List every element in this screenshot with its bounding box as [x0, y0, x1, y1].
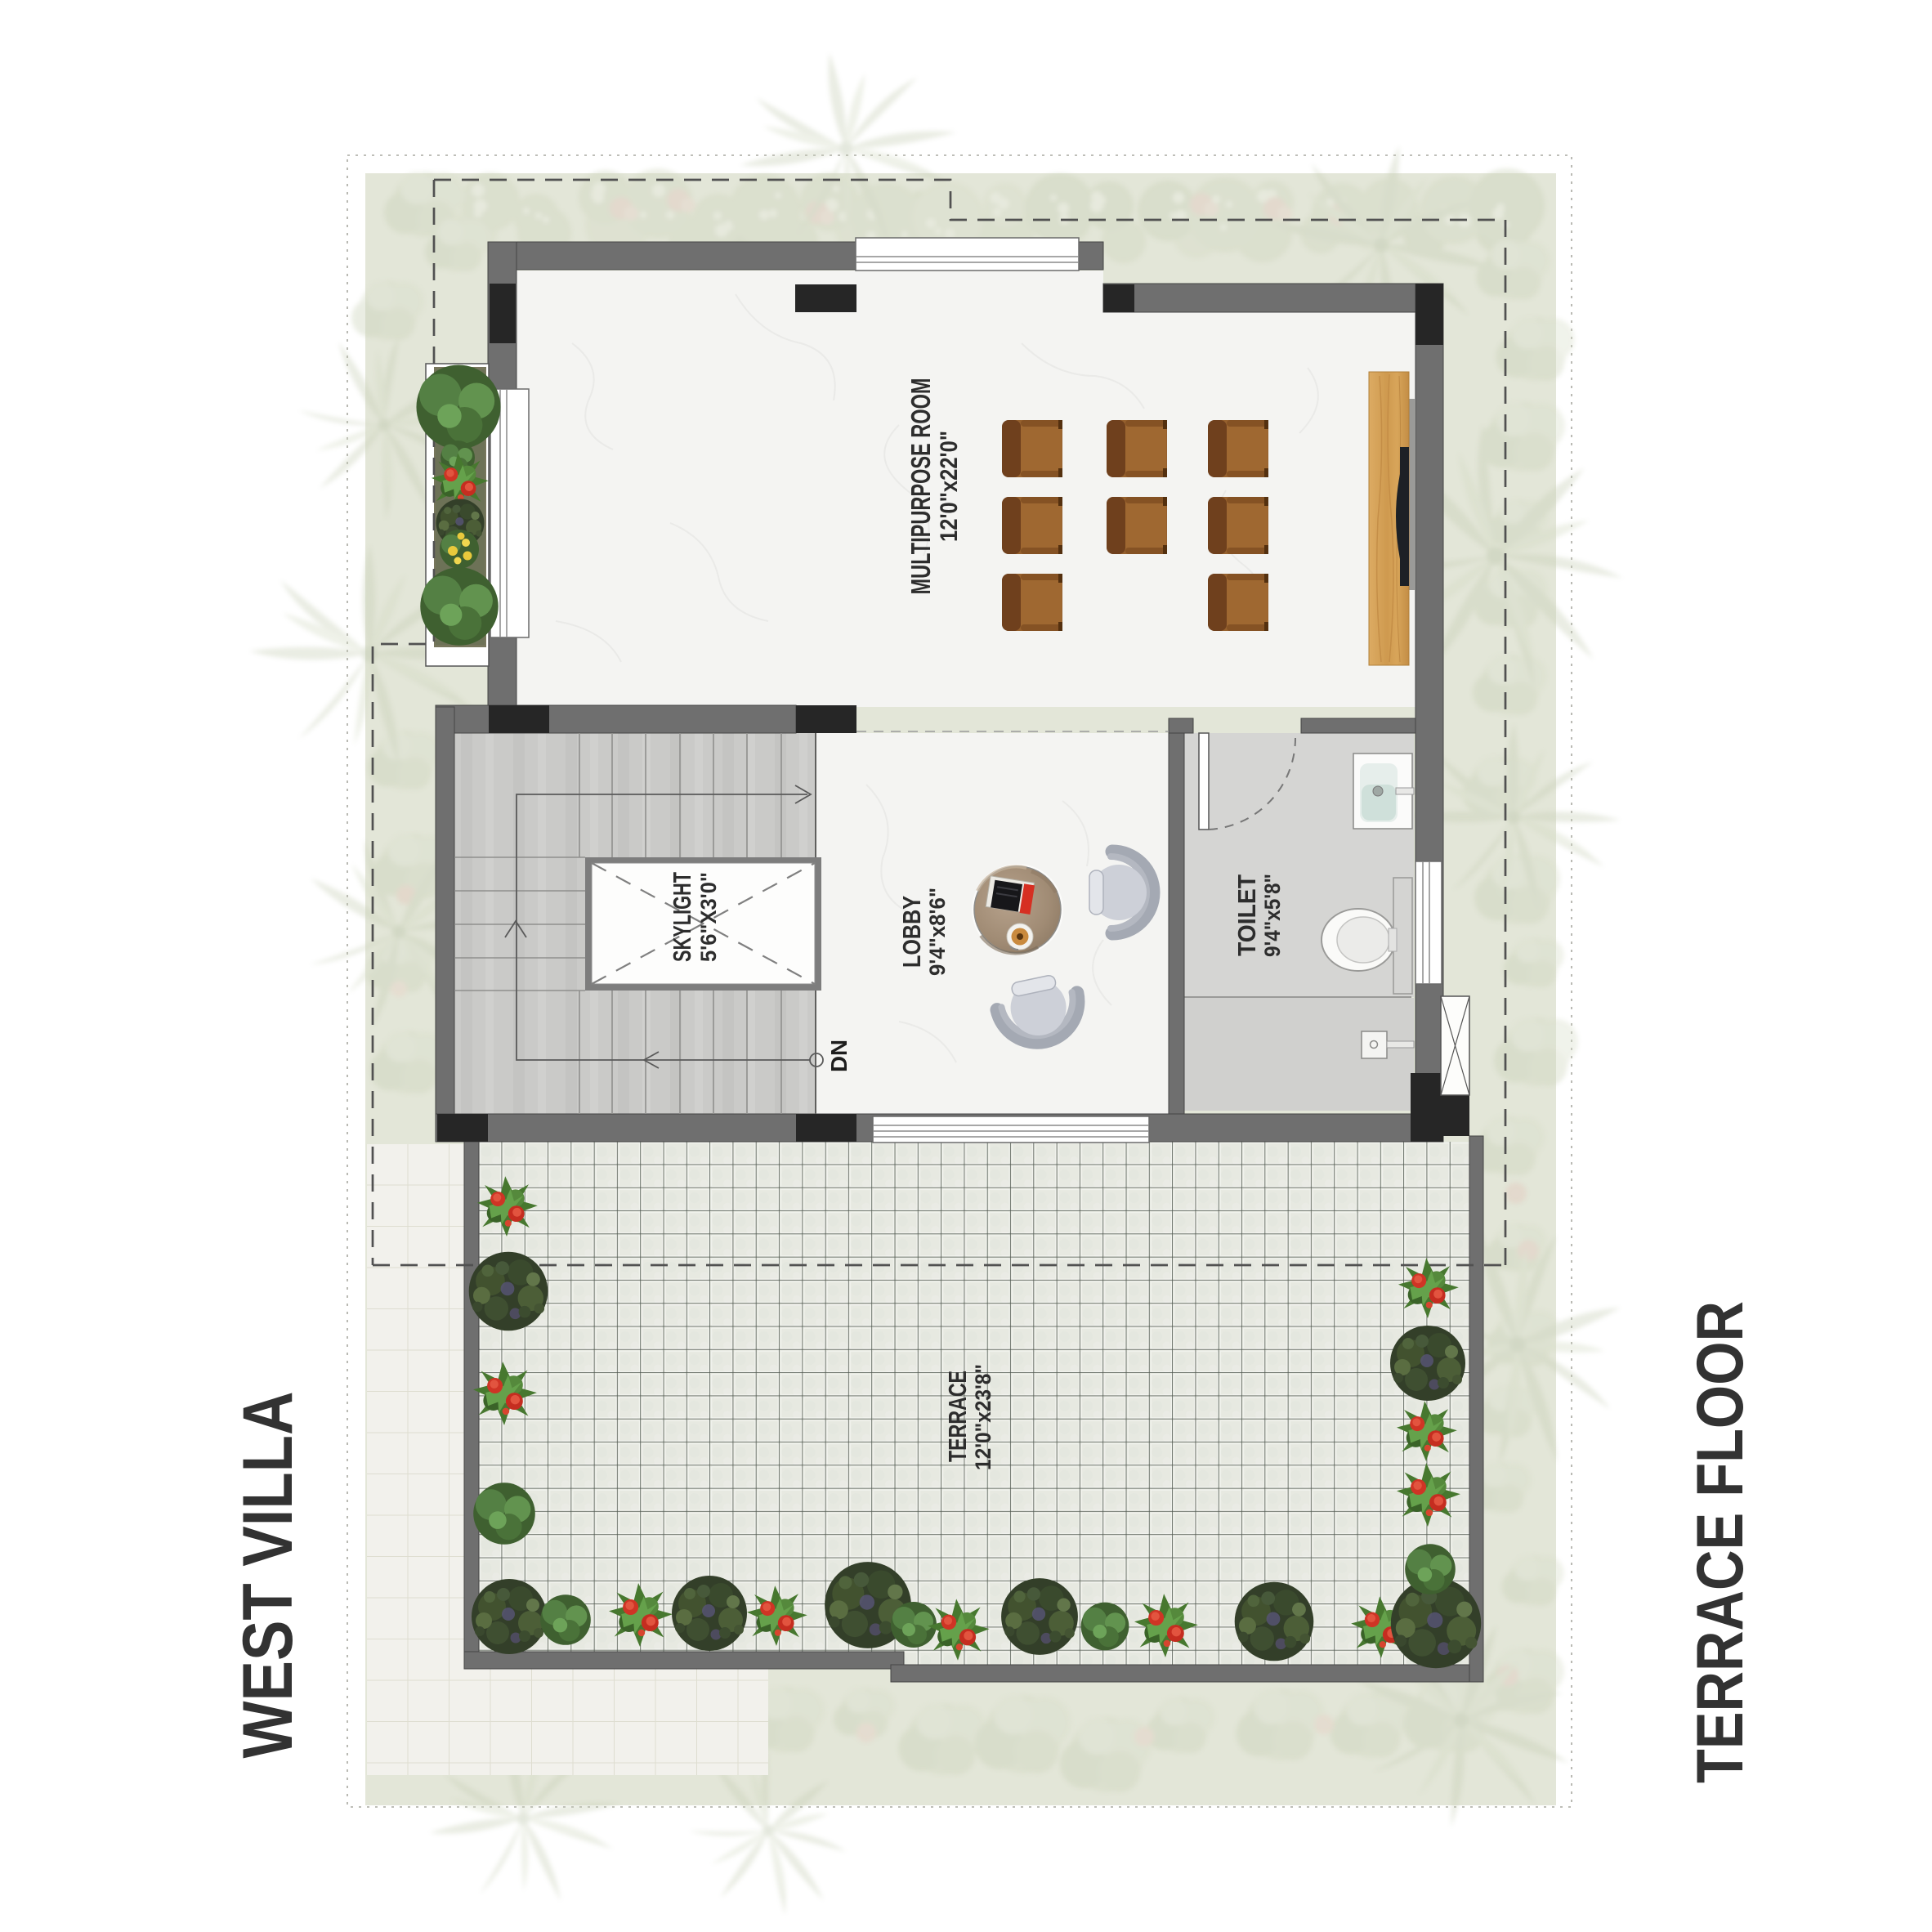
svg-text:12'0"x23'8": 12'0"x23'8"	[971, 1364, 995, 1470]
svg-text:DN: DN	[826, 1040, 852, 1072]
svg-text:9'4"x5'8": 9'4"x5'8"	[1260, 874, 1285, 957]
svg-text:12'0"x22'0": 12'0"x22'0"	[936, 431, 963, 542]
svg-text:TERRACE: TERRACE	[943, 1371, 972, 1462]
svg-text:WEST VILLA: WEST VILLA	[229, 1392, 307, 1759]
svg-text:5'6"X3'0": 5'6"X3'0"	[696, 872, 721, 962]
svg-text:TOILET: TOILET	[1232, 874, 1261, 956]
svg-text:TERRACE FLOOR: TERRACE FLOOR	[1684, 1301, 1757, 1783]
svg-text:LOBBY: LOBBY	[897, 896, 926, 968]
svg-text:SKYLIGHT: SKYLIGHT	[668, 872, 696, 962]
svg-text:MULTIPURPOSE ROOM: MULTIPURPOSE ROOM	[906, 378, 936, 595]
svg-text:9'4"x8'6": 9'4"x8'6"	[925, 888, 950, 976]
